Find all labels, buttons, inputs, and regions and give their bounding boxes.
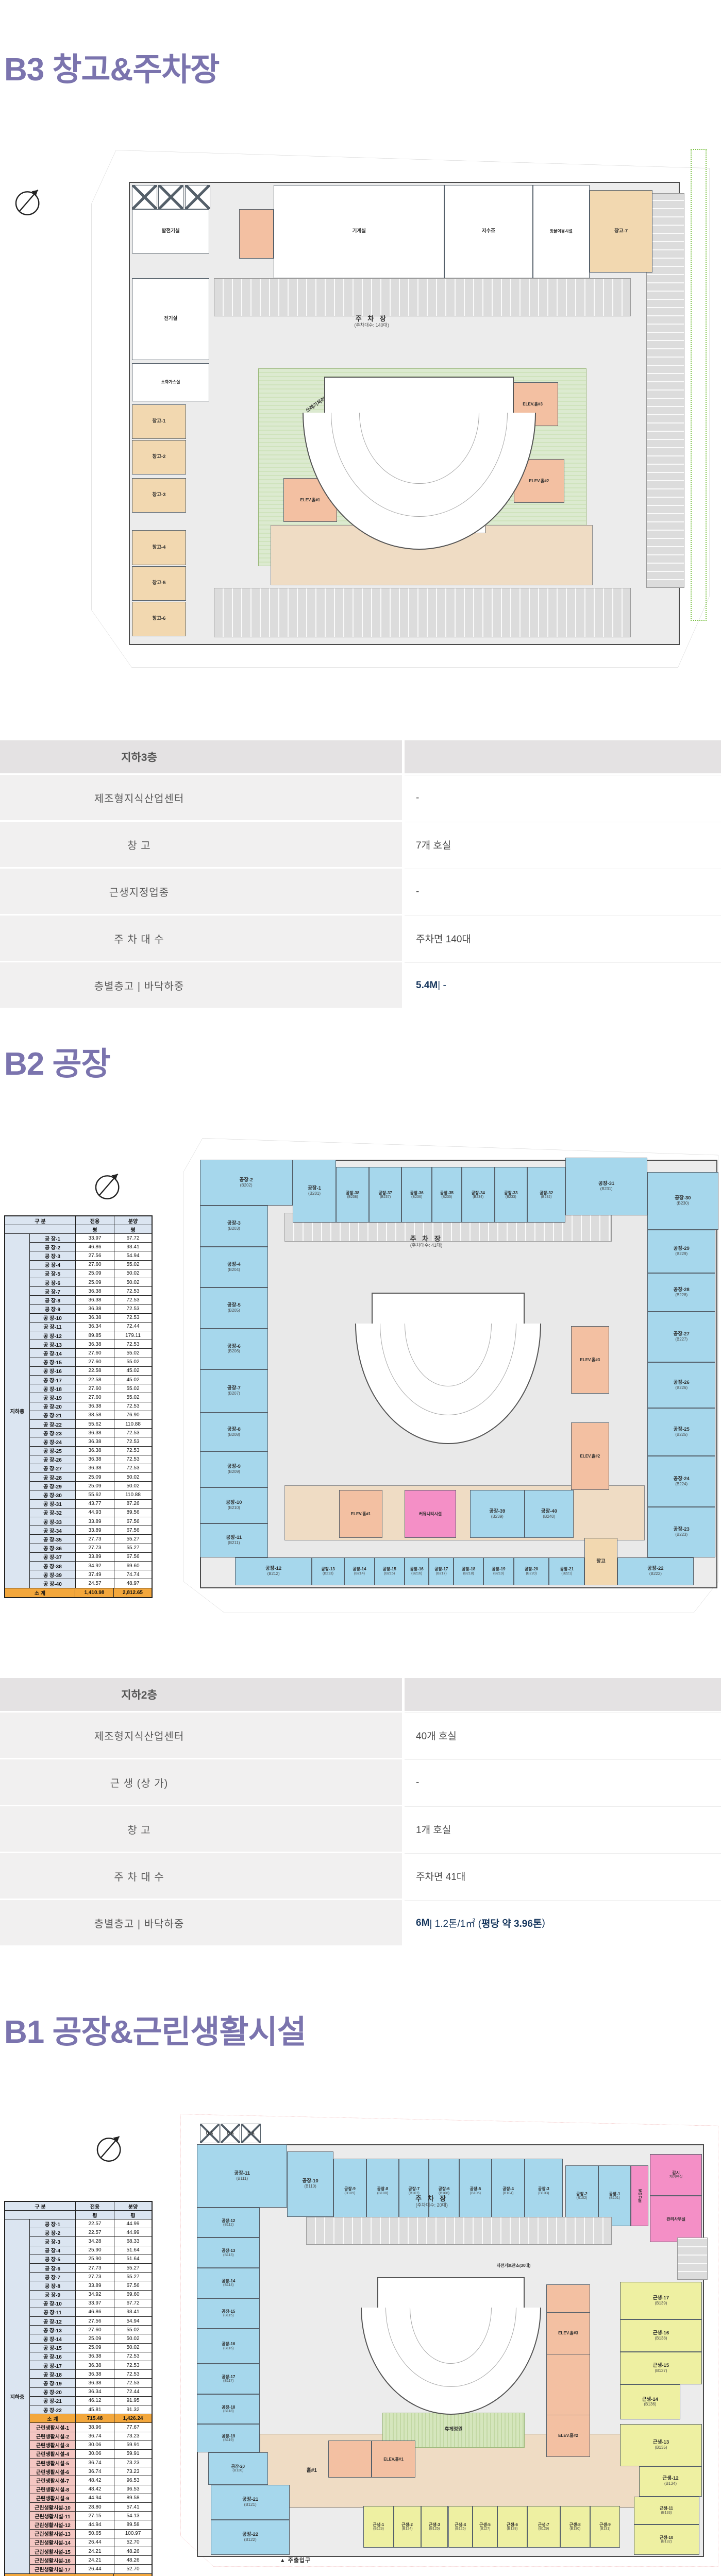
area-row: 근린생활시설-7 48.42 96.53 <box>30 2476 152 2485</box>
area-row: 공 장-18 27.60 55.02 <box>30 1384 152 1393</box>
floor-cell: 지하층 <box>5 1234 30 1588</box>
plan-room: 공장-11 (B211) <box>200 1523 268 1557</box>
area-row: 공 장-4 25.90 51.64 <box>30 2246 152 2255</box>
plan-room: 공장-3 (B103) <box>525 2159 563 2224</box>
info-table-b3: 지하3층 제조형지식산업센터 - 창 고 7개 호실 <box>0 740 721 1008</box>
plan-room: 공장-1 (B201) <box>293 1160 337 1223</box>
area-row: 공 장-36 27.73 55.27 <box>30 1544 152 1553</box>
area-row: 근린생활시설-1 38.96 77.67 <box>30 2423 152 2432</box>
area-row: 공 장-4 27.60 55.02 <box>30 1261 152 1269</box>
plan-room: 공장-14 (B114) <box>197 2268 260 2298</box>
area-row: 공 장-25 36.38 72.53 <box>30 1447 152 1455</box>
plan-room: 공장-15 (B115) <box>197 2298 260 2329</box>
plan-room: MDF실 <box>631 2165 648 2226</box>
plan-room: 근생-12 (B134) <box>639 2466 702 2497</box>
plan-room: 공장-15 (B215) <box>375 1557 405 1585</box>
info-row-value: 40개 호실 <box>405 1713 721 1758</box>
plan-room: 공장-9 (B209) <box>200 1451 268 1487</box>
area-row: 공 장-13 36.38 72.53 <box>30 1340 152 1349</box>
area-row: 공 장-21 38.58 76.90 <box>30 1411 152 1420</box>
plan-room: 공장-18 (B218) <box>454 1557 483 1585</box>
plan-room: 공장-9 (B109) <box>333 2159 366 2224</box>
area-row: 근린생활시설-11 27.15 54.13 <box>30 2512 152 2520</box>
area-table-header: 구 분 전용 분양 평 평 <box>4 2201 153 2219</box>
plan-room: 근생-5 (B127) <box>473 2506 497 2548</box>
plan-room <box>328 2441 372 2478</box>
info-row-value: 1개 호실 <box>405 1806 721 1852</box>
area-row: 공 장-22 55.62 110.88 <box>30 1420 152 1429</box>
area-row: 근린생활시설-2 36.74 73.23 <box>30 2432 152 2441</box>
plan-room: 공장-16 (B116) <box>197 2329 260 2364</box>
plan-room: 근생-13 (B135) <box>620 2424 702 2466</box>
info-row: 창 고 1개 호실 <box>0 1805 721 1852</box>
subtotal-row: 소 계 1,410.98 2,812.65 <box>4 1588 153 1598</box>
plan-room: 근생-2 (B124) <box>394 2506 421 2548</box>
plan-room: ▲ 주출입구 <box>257 2552 333 2569</box>
plan-room: 창고-6 <box>132 602 186 636</box>
plan-room: 창고-4 <box>132 530 186 565</box>
compass-icon <box>9 181 47 219</box>
plan-room: 근생-1 (B123) <box>363 2506 393 2548</box>
plan-room: 공장-20 (B120) <box>208 2452 268 2485</box>
info-row: 근생지정업종 - <box>0 867 721 914</box>
floor-plan-b1: D.A D.A D.A 공장-11 (B111) <box>175 2107 721 2573</box>
info-row-label: 층별층고 | 바닥하중 <box>0 1916 278 1930</box>
area-row: 공 장-7 27.73 55.27 <box>30 2273 152 2281</box>
plan-room: 공장-21 (B221) <box>549 1557 584 1585</box>
plan-room: 홀#1 <box>290 2462 333 2480</box>
plan-room: 공장-17 (B217) <box>429 1557 454 1585</box>
info-row-label: 제조형지식산업센터 <box>0 790 278 805</box>
plan-room: 근생-3 (B125) <box>421 2506 448 2548</box>
area-row: 공 장-31 43.77 87.26 <box>30 1500 152 1509</box>
area-row: 공 장-33 33.89 67.56 <box>30 1517 152 1526</box>
plan-room: 근생-8 (B130) <box>560 2506 590 2548</box>
area-row: 공 장-14 27.60 55.02 <box>30 1349 152 1358</box>
plan-room: D.A <box>221 2124 240 2143</box>
plan-room: 창고 <box>584 1538 617 1585</box>
info-row-label: 주 차 대 수 <box>0 1869 278 1884</box>
plan-room: 근생-10 (B132) <box>634 2524 699 2555</box>
plan-room <box>677 2238 707 2279</box>
area-row: 공 장-1 22.57 44.99 <box>30 2219 152 2228</box>
floor-guide-page: B3 창고&주차장 <box>0 0 721 2576</box>
info-row-label: 창 고 <box>0 1822 278 1837</box>
plan-room: 공장-5 (B205) <box>200 1287 268 1328</box>
area-row: 공 장-30 55.62 110.88 <box>30 1490 152 1499</box>
plan-room: 공장-4 (B104) <box>492 2159 525 2224</box>
plan-room: 공장-10 (B210) <box>200 1487 268 1523</box>
area-row: 공 장-2 46.86 93.41 <box>30 1243 152 1251</box>
area-row: 공 장-9 36.38 72.53 <box>30 1305 152 1314</box>
plan-room: ELEV.홀#1 <box>372 2441 415 2478</box>
plan-room: 공장-19 (B219) <box>483 1557 513 1585</box>
area-row: 공 장-14 25.09 50.02 <box>30 2334 152 2343</box>
area-row: 공 장-3 27.56 54.94 <box>30 1251 152 1260</box>
area-row: 공 장-16 36.38 72.53 <box>30 2352 152 2361</box>
plan-room: 공장-11 (B111) <box>197 2144 287 2207</box>
plan-room: D.A <box>200 2124 220 2143</box>
plan-room <box>214 588 631 637</box>
info-row-label: 근생지정업종 <box>0 884 278 899</box>
area-row: 공 장-10 36.38 72.53 <box>30 1314 152 1323</box>
area-row: 공 장-2 22.57 44.99 <box>30 2228 152 2237</box>
area-row: 근린생활시설-14 26.44 52.70 <box>30 2538 152 2547</box>
plan-room: 공장-37 (B237) <box>369 1167 402 1223</box>
area-row: 공 장-38 34.92 69.60 <box>30 1562 152 1570</box>
area-row: 공 장-29 25.09 50.02 <box>30 1482 152 1490</box>
plan-room: 근생-6 (B128) <box>497 2506 527 2548</box>
plan-room: 공장-20 (B220) <box>514 1557 549 1585</box>
plan-room: 공장-28 (B228) <box>647 1273 715 1312</box>
plan-room: 공장-24 (B224) <box>647 1456 715 1506</box>
area-row: 공 장-34 33.89 67.56 <box>30 1526 152 1535</box>
area-row: 근린생활시설-6 36.74 73.23 <box>30 2467 152 2476</box>
info-row: 제조형지식산업센터 40개 호실 <box>0 1711 721 1758</box>
area-table-b1: 구 분 전용 분양 평 평 지하층 공 장-1 22.57 44.99 <box>4 2201 153 2576</box>
area-row: 공 장-20 36.38 72.53 <box>30 1402 152 1411</box>
area-row: 공 장-1 33.97 67.72 <box>30 1234 152 1243</box>
plan-room <box>132 185 157 210</box>
plan-room: 공장-35 (B235) <box>432 1167 462 1223</box>
plan-room: 공장-6 (B206) <box>200 1329 268 1369</box>
area-row: 공 장-18 36.38 72.53 <box>30 2370 152 2379</box>
plan-room: 공장-17 (B117) <box>197 2364 260 2394</box>
plan-room: ELEV.홀#2 <box>571 1422 609 1490</box>
plan-room: 공장-7 (B207) <box>200 1369 268 1413</box>
plan-room: 주 차 장 (주차대수: 140대) <box>315 303 429 342</box>
plan-room: 공장-31 (B231) <box>565 1158 647 1215</box>
area-row: 공 장-8 33.89 67.56 <box>30 2281 152 2290</box>
area-row: 공 장-15 27.60 55.02 <box>30 1358 152 1367</box>
area-row: 근린생활시설-12 44.94 89.58 <box>30 2520 152 2529</box>
area-row: 공 장-22 45.81 91.32 <box>30 2405 152 2414</box>
plan-room: 근생-9 (B131) <box>590 2506 620 2548</box>
info-row-label: 창 고 <box>0 837 278 852</box>
area-row: 공 장-9 34.92 69.60 <box>30 2291 152 2299</box>
area-row: 근린생활시설-9 44.94 89.58 <box>30 2494 152 2503</box>
plan-room: 공장-12 (B212) <box>235 1557 311 1585</box>
floor-label: 지하3층 <box>0 749 278 765</box>
area-row: 근린생활시설-4 30.06 59.91 <box>30 2450 152 2459</box>
area-row: 공 장-35 27.73 55.27 <box>30 1535 152 1544</box>
area-row: 공 장-3 34.28 68.33 <box>30 2237 152 2246</box>
plan-room: 공장-23 (B223) <box>647 1507 715 1557</box>
plan-room: 주 차 장 (주차대수: 41대) <box>382 1225 470 1259</box>
area-row: 근린생활시설-10 28.80 57.41 <box>30 2503 152 2512</box>
area-row: 소 계 715.48 1,426.24 <box>30 2414 152 2423</box>
area-row: 근린생활시설-13 50.65 100.97 <box>30 2530 152 2538</box>
plan-room: 공장-18 (B118) <box>197 2394 260 2425</box>
area-row: 근린생활시설-16 24.21 48.26 <box>30 2556 152 2565</box>
info-row-value: - <box>405 775 721 820</box>
info-header: 지하2층 <box>0 1678 721 1711</box>
area-row: 공 장-27 36.38 72.53 <box>30 1464 152 1473</box>
plan-room: 기계실 <box>274 185 444 278</box>
section-title-b3: B3 창고&주차장 <box>4 43 219 90</box>
plan-room: 공장-39 (B239) <box>470 1490 525 1538</box>
area-row: 공 장-13 27.60 55.02 <box>30 2326 152 2334</box>
floor-label: 지하2층 <box>0 1687 278 1702</box>
info-row-value: 5.4M | - <box>405 962 721 1008</box>
info-row: 창 고 7개 호실 <box>0 820 721 867</box>
info-row-label: 근 생 (상 가) <box>0 1775 278 1790</box>
info-row-value: - <box>405 1759 721 1805</box>
plan-room <box>691 149 707 621</box>
info-row-value: 주차면 140대 <box>405 916 721 961</box>
area-row: 공 장-26 36.38 72.53 <box>30 1455 152 1464</box>
compass-icon <box>89 1165 127 1204</box>
floor-cell: 지하층 <box>5 2219 30 2573</box>
plan-room: 공장-2 (B202) <box>200 1160 293 1206</box>
plan-room: 전기실 <box>132 278 210 361</box>
section-title-b1: B1 공장&근린생활시설 <box>4 2006 306 2052</box>
plan-room: 공장-21 (B121) <box>211 2485 290 2520</box>
area-row: 공 장-20 36.34 72.44 <box>30 2388 152 2397</box>
plan-room: 창고-5 <box>132 566 186 601</box>
area-row: 공 장-17 36.38 72.53 <box>30 2361 152 2370</box>
plan-room: 공장-22 (B122) <box>211 2520 290 2555</box>
plan-room: 공장-12 (B112) <box>197 2208 260 2238</box>
area-table-b2: 구 분 전용 분양 평 평 지하층 공 장-1 33.97 67.72 <box>4 1215 153 1598</box>
plan-room: ELEV.홀#3 <box>546 2312 590 2354</box>
area-row: 공 장-17 22.58 45.02 <box>30 1376 152 1384</box>
info-table-b2: 지하2층 제조형지식산업센터 40개 호실 근 생 (상 가) - <box>0 1678 721 1945</box>
area-row: 공 장-37 33.89 67.56 <box>30 1553 152 1562</box>
info-row: 층별층고 | 바닥하중 6M | 1.2톤/1㎡ (평당 약 3.96톤) <box>0 1899 721 1945</box>
area-row: 공 장-32 44.93 89.56 <box>30 1509 152 1517</box>
plan-room: 근생-11 (B133) <box>634 2497 699 2524</box>
info-row: 주 차 대 수 주차면 41대 <box>0 1852 721 1899</box>
floor-plan-b3: 발전기실 기계실 저수조 빗물 <box>88 138 719 687</box>
plan-room: 공장-19 (B119) <box>197 2424 260 2452</box>
plan-room: 공장-13 (B113) <box>197 2238 260 2268</box>
plan-room: 공장-13 (B213) <box>312 1557 345 1585</box>
plan-room: 근생-16 (B138) <box>620 2319 702 2352</box>
area-row: 공 장-12 27.56 54.94 <box>30 2317 152 2326</box>
plan-room: ELEV.홀#3 <box>571 1326 609 1394</box>
plan-room: 공장-34 (B234) <box>462 1167 495 1223</box>
area-row: 공 장-39 37.49 74.74 <box>30 1570 152 1579</box>
plan-room: 근생-15 (B137) <box>620 2352 702 2384</box>
info-row: 층별층고 | 바닥하중 5.4M | - <box>0 961 721 1008</box>
plan-room <box>185 185 210 210</box>
col-supply: 분양 <box>114 1216 152 1225</box>
area-row: 공 장-7 36.38 72.53 <box>30 1287 152 1296</box>
section-title-b2: B2 공장 <box>4 1038 110 1084</box>
col-category: 구 분 <box>5 1216 76 1225</box>
plan-room: 자전거보관소(30대) <box>470 2259 557 2273</box>
area-row: 공 장-11 36.34 72.44 <box>30 1323 152 1331</box>
plan-room <box>284 1485 645 1541</box>
plan-room: 소화가스실 <box>132 363 210 402</box>
atrium-top <box>324 377 514 415</box>
plan-room <box>306 2217 612 2245</box>
plan-room: 주 차 장 (주차대수: 20대) <box>382 2187 481 2217</box>
plan-room: 근생-17 (B139) <box>620 2282 702 2319</box>
plan-room: 빗물이용시설 <box>533 185 590 278</box>
plan-room: 공장-25 (B225) <box>647 1408 715 1456</box>
area-row: 공 장-23 36.38 72.53 <box>30 1429 152 1437</box>
info-row-value: - <box>405 869 721 914</box>
info-row: 주 차 대 수 주차면 140대 <box>0 914 721 961</box>
plan-room: D.A <box>241 2124 261 2143</box>
area-row: 공 장-40 24.57 48.97 <box>30 1579 152 1587</box>
floor-plan-b2: 공장-2 (B202) 공장-1 (B201) 공장-38 (B238) 공장-… <box>175 1133 721 1615</box>
area-row: 공 장-11 46.86 93.41 <box>30 2308 152 2317</box>
area-row: 공 장-5 25.90 51.64 <box>30 2255 152 2264</box>
area-row: 공 장-5 25.09 50.02 <box>30 1269 152 1278</box>
area-row: 공 장-19 36.38 72.53 <box>30 2379 152 2387</box>
plan-room: 근생-4 (B126) <box>448 2506 473 2548</box>
area-row: 근린생활시설-15 24.21 48.26 <box>30 2547 152 2556</box>
plan-room: 저수조 <box>444 185 533 278</box>
plan-room: ELEV.홀#2 <box>546 2415 590 2456</box>
col-exclusive: 전용 <box>76 1216 114 1225</box>
info-row-value: 주차면 41대 <box>405 1853 721 1899</box>
plan-room: 공장-40 (B240) <box>525 1490 574 1538</box>
area-row: 공 장-15 25.09 50.02 <box>30 2344 152 2352</box>
info-row-label: 주 차 대 수 <box>0 931 278 946</box>
area-row: 근린생활시설-17 26.44 52.70 <box>30 2565 152 2573</box>
compass-icon <box>91 2128 129 2166</box>
info-row-label: 제조형지식산업센터 <box>0 1728 278 1743</box>
plan-room: ELEV.홀#1 <box>339 1490 383 1538</box>
plan-room: 공장-16 (B216) <box>405 1557 429 1585</box>
plan-room: 커뮤니티시설 <box>405 1490 457 1538</box>
area-row: 공 장-24 36.38 72.53 <box>30 1437 152 1446</box>
area-row: 공 장-6 27.73 55.27 <box>30 2264 152 2273</box>
plan-room: 창고-1 <box>132 404 186 439</box>
plan-room: 공장-29 (B229) <box>647 1230 715 1273</box>
atrium-top <box>377 2277 525 2310</box>
area-row: 근린생활시설-8 48.42 96.53 <box>30 2485 152 2494</box>
area-row: 공 장-16 22.58 45.02 <box>30 1367 152 1376</box>
plan-room: 발전기실 <box>132 209 210 253</box>
plan-room: 공장-38 (B238) <box>336 1167 369 1223</box>
plan-room: 공장-30 (B230) <box>647 1172 718 1230</box>
info-row: 근 생 (상 가) - <box>0 1758 721 1805</box>
plan-room <box>158 185 183 210</box>
info-row-value: 7개 호실 <box>405 822 721 867</box>
plan-room: 창고-2 <box>132 440 186 474</box>
plan-room: 감시 제어반실 <box>650 2154 702 2196</box>
plan-room: 공장-36 (B236) <box>401 1167 431 1223</box>
info-header: 지하3층 <box>0 740 721 773</box>
area-row: 공 장-19 27.60 55.02 <box>30 1393 152 1402</box>
info-row: 제조형지식산업센터 - <box>0 773 721 820</box>
plan-room: 창고-3 <box>132 478 186 513</box>
plan-room: 창고-7 <box>590 190 653 273</box>
area-row: 공 장-12 89.85 179.11 <box>30 1331 152 1340</box>
plan-room: 공장-10 (B110) <box>287 2151 333 2217</box>
plan-room: 공장-22 (B222) <box>617 1557 694 1585</box>
area-table-header: 구 분 전용 분양 평 평 <box>4 1215 153 1233</box>
plan-room: 근생-7 (B129) <box>527 2506 560 2548</box>
area-row: 공 장-6 25.09 50.02 <box>30 1278 152 1287</box>
area-row: 근린생활시설-3 30.06 59.91 <box>30 2441 152 2450</box>
area-row: 근린생활시설-5 36.74 73.23 <box>30 2459 152 2467</box>
plan-room <box>239 209 274 259</box>
plan-room: 공장-8 (B208) <box>200 1413 268 1451</box>
area-row: 공 장-10 33.97 67.72 <box>30 2299 152 2308</box>
area-row: 공 장-21 46.12 91.95 <box>30 2397 152 2405</box>
subtotal-row: 소 계 603.91 1,203.83 <box>4 2573 153 2576</box>
atrium-top <box>372 1293 525 1326</box>
plan-room: 공장-27 (B227) <box>647 1312 715 1362</box>
plan-room: 공장-3 (B203) <box>200 1206 268 1246</box>
info-row-label: 층별층고 | 바닥하중 <box>0 978 278 993</box>
plan-room: 공장-4 (B204) <box>200 1247 268 1287</box>
plan-room: 공장-32 (B232) <box>527 1167 565 1223</box>
plan-room: 근생-14 (B136) <box>620 2384 680 2419</box>
area-row: 공 장-28 25.09 50.02 <box>30 1473 152 1482</box>
area-row: 공 장-8 36.38 72.53 <box>30 1296 152 1304</box>
plan-room: 공장-33 (B233) <box>495 1167 528 1223</box>
plan-room: 공장-14 (B214) <box>344 1557 374 1585</box>
plan-room: 관리사무실 <box>650 2196 702 2243</box>
info-row-value: 6M | 1.2톤/1㎡ (평당 약 3.96톤) <box>405 1900 721 1945</box>
plan-room: 공장-26 (B226) <box>647 1362 715 1408</box>
